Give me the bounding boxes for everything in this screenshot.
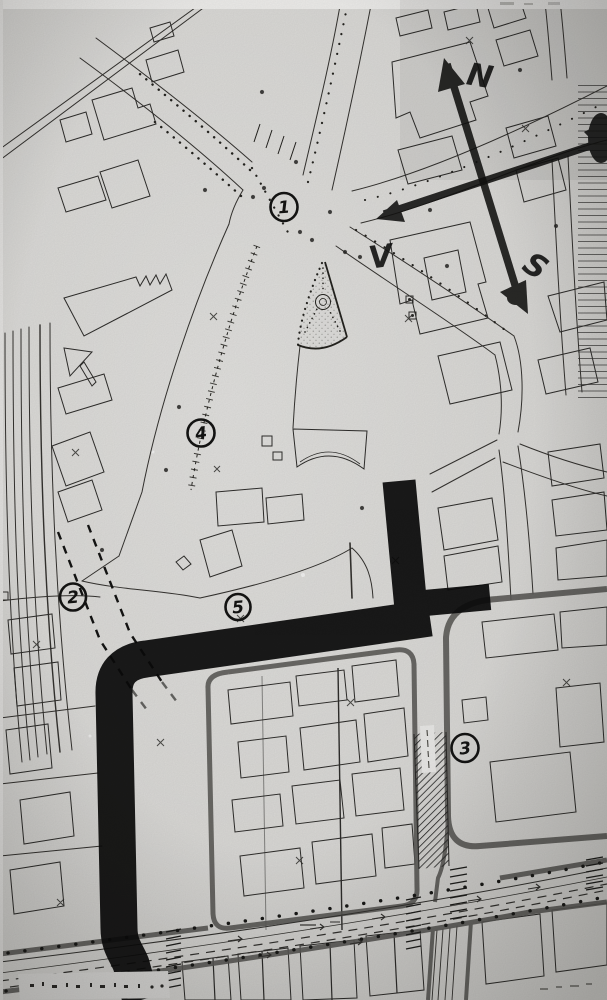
map-image: N V S 1 2 3 4 5 [0,0,607,1000]
film-grain [0,0,607,1000]
photographed-city-plan: N V S 1 2 3 4 5 [0,0,607,1000]
